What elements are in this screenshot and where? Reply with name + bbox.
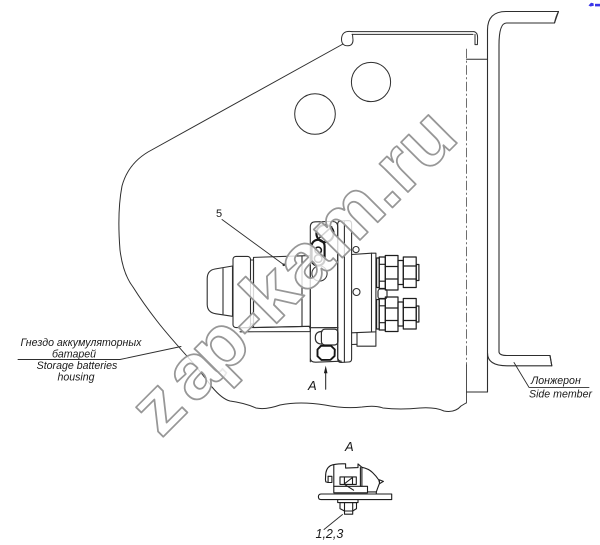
svg-text:5: 5 [216,208,222,220]
svg-text:A: A [344,439,354,454]
svg-text:zap-kam.ru: zap-kam.ru [112,91,472,451]
svg-text:батарей: батарей [52,349,96,361]
svg-text:Storage batteries: Storage batteries [37,360,118,372]
svg-text:1,2,3: 1,2,3 [316,527,344,541]
svg-text:housing: housing [57,372,94,384]
svg-text:Side member: Side member [529,389,592,401]
svg-text:Гнездо аккумуляторных: Гнездо аккумуляторных [21,337,143,349]
svg-text:A: A [307,378,317,393]
svg-text:Лонжерон: Лонжерон [530,375,581,387]
